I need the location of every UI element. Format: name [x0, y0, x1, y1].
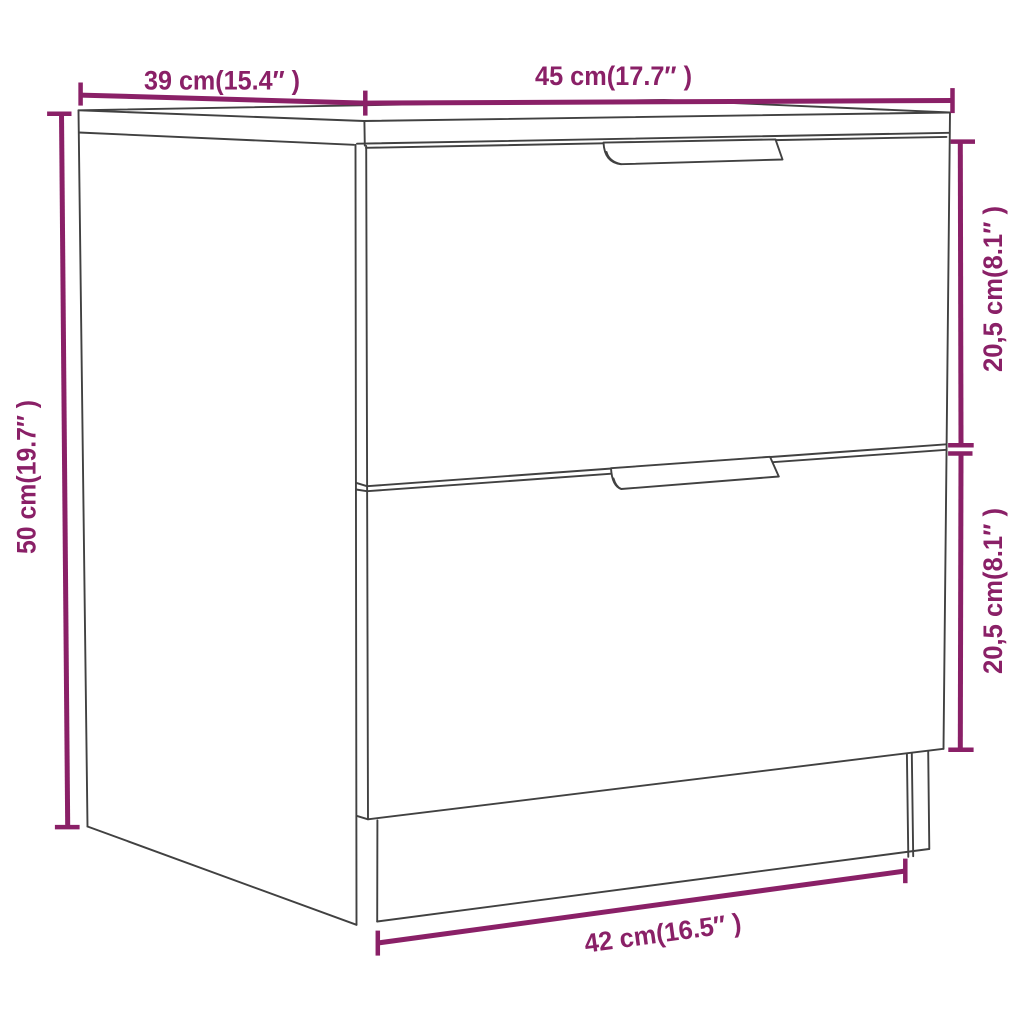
svg-text:39 cm(15.4″ ): 39 cm(15.4″ )	[144, 66, 300, 96]
svg-text:20,5 cm(8.1″ ): 20,5 cm(8.1″ )	[978, 508, 1008, 674]
svg-text:20,5 cm(8.1″ ): 20,5 cm(8.1″ )	[978, 206, 1008, 372]
svg-text:45 cm(17.7″ ): 45 cm(17.7″ )	[535, 61, 692, 91]
svg-text:50 cm(19.7″ ): 50 cm(19.7″ )	[12, 400, 42, 554]
